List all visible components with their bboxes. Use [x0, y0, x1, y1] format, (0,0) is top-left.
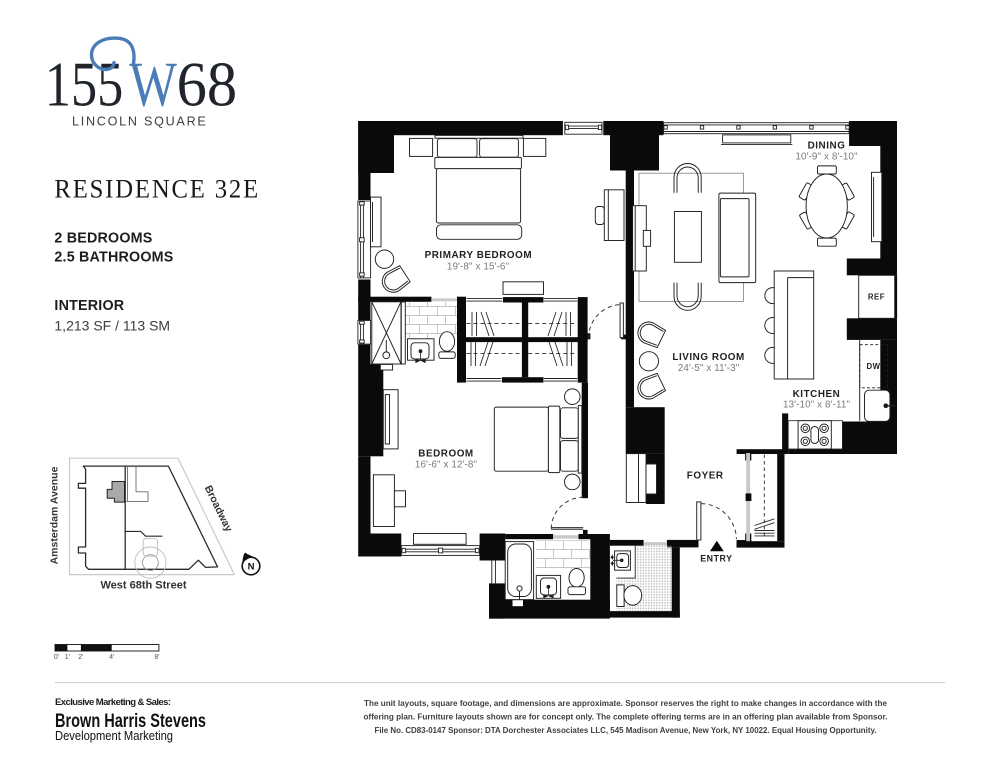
svg-text:N: N	[248, 562, 255, 573]
svg-text:File No. CD83-0147 Sponsor: DT: File No. CD83-0147 Sponsor: DTA Dorchest…	[375, 725, 877, 735]
svg-text:LINCOLN SQUARE: LINCOLN SQUARE	[72, 115, 209, 129]
svg-text:2 BEDROOMS: 2 BEDROOMS	[54, 231, 152, 247]
svg-text:1,213 SF / 113 SM: 1,213 SF / 113 SM	[54, 318, 170, 334]
svg-text:BEDROOM: BEDROOM	[418, 449, 473, 460]
svg-text:West 68th Street: West 68th Street	[101, 580, 187, 592]
svg-text:KITCHEN: KITCHEN	[793, 389, 841, 400]
svg-text:2.5 BATHROOMS: 2.5 BATHROOMS	[54, 250, 173, 266]
svg-text:FOYER: FOYER	[687, 471, 724, 482]
svg-text:Amsterdam Avenue: Amsterdam Avenue	[49, 466, 61, 564]
svg-text:ENTRY: ENTRY	[700, 553, 732, 563]
svg-text:24'-5" x 11'-3": 24'-5" x 11'-3"	[678, 363, 740, 374]
svg-text:REF: REF	[868, 293, 885, 302]
svg-text:Broadway: Broadway	[202, 484, 235, 535]
svg-text:8': 8'	[154, 654, 159, 661]
svg-text:2': 2'	[78, 654, 83, 661]
svg-text:4': 4'	[109, 654, 114, 661]
svg-text:19'-8" x 15'-6": 19'-8" x 15'-6"	[447, 262, 510, 273]
svg-text:PRIMARY BEDROOM: PRIMARY BEDROOM	[425, 250, 533, 261]
svg-text:10'-9" x 8'-10": 10'-9" x 8'-10"	[795, 151, 858, 162]
svg-text:DW: DW	[866, 362, 880, 371]
svg-text:DINING: DINING	[808, 140, 846, 151]
svg-text:Development Marketing: Development Marketing	[55, 729, 173, 743]
svg-text:RESIDENCE 32E: RESIDENCE 32E	[54, 174, 260, 204]
svg-text:LIVING ROOM: LIVING ROOM	[672, 352, 744, 363]
svg-text:16'-6" x 12'-8": 16'-6" x 12'-8"	[415, 460, 478, 471]
svg-text:W: W	[129, 49, 177, 119]
svg-text:68: 68	[177, 49, 238, 119]
svg-text:13'-10" x 8'-11": 13'-10" x 8'-11"	[783, 400, 850, 411]
svg-text:offering plan. Furniture layou: offering plan. Furniture layouts shown a…	[364, 712, 888, 722]
svg-text:155: 155	[45, 49, 124, 119]
svg-text:INTERIOR: INTERIOR	[54, 298, 124, 314]
svg-text:Exclusive Marketing & Sales:: Exclusive Marketing & Sales:	[55, 697, 171, 708]
svg-text:0': 0'	[54, 654, 59, 661]
svg-text:The unit layouts, square foota: The unit layouts, square footage, and di…	[364, 698, 887, 708]
svg-text:1': 1'	[65, 654, 70, 661]
